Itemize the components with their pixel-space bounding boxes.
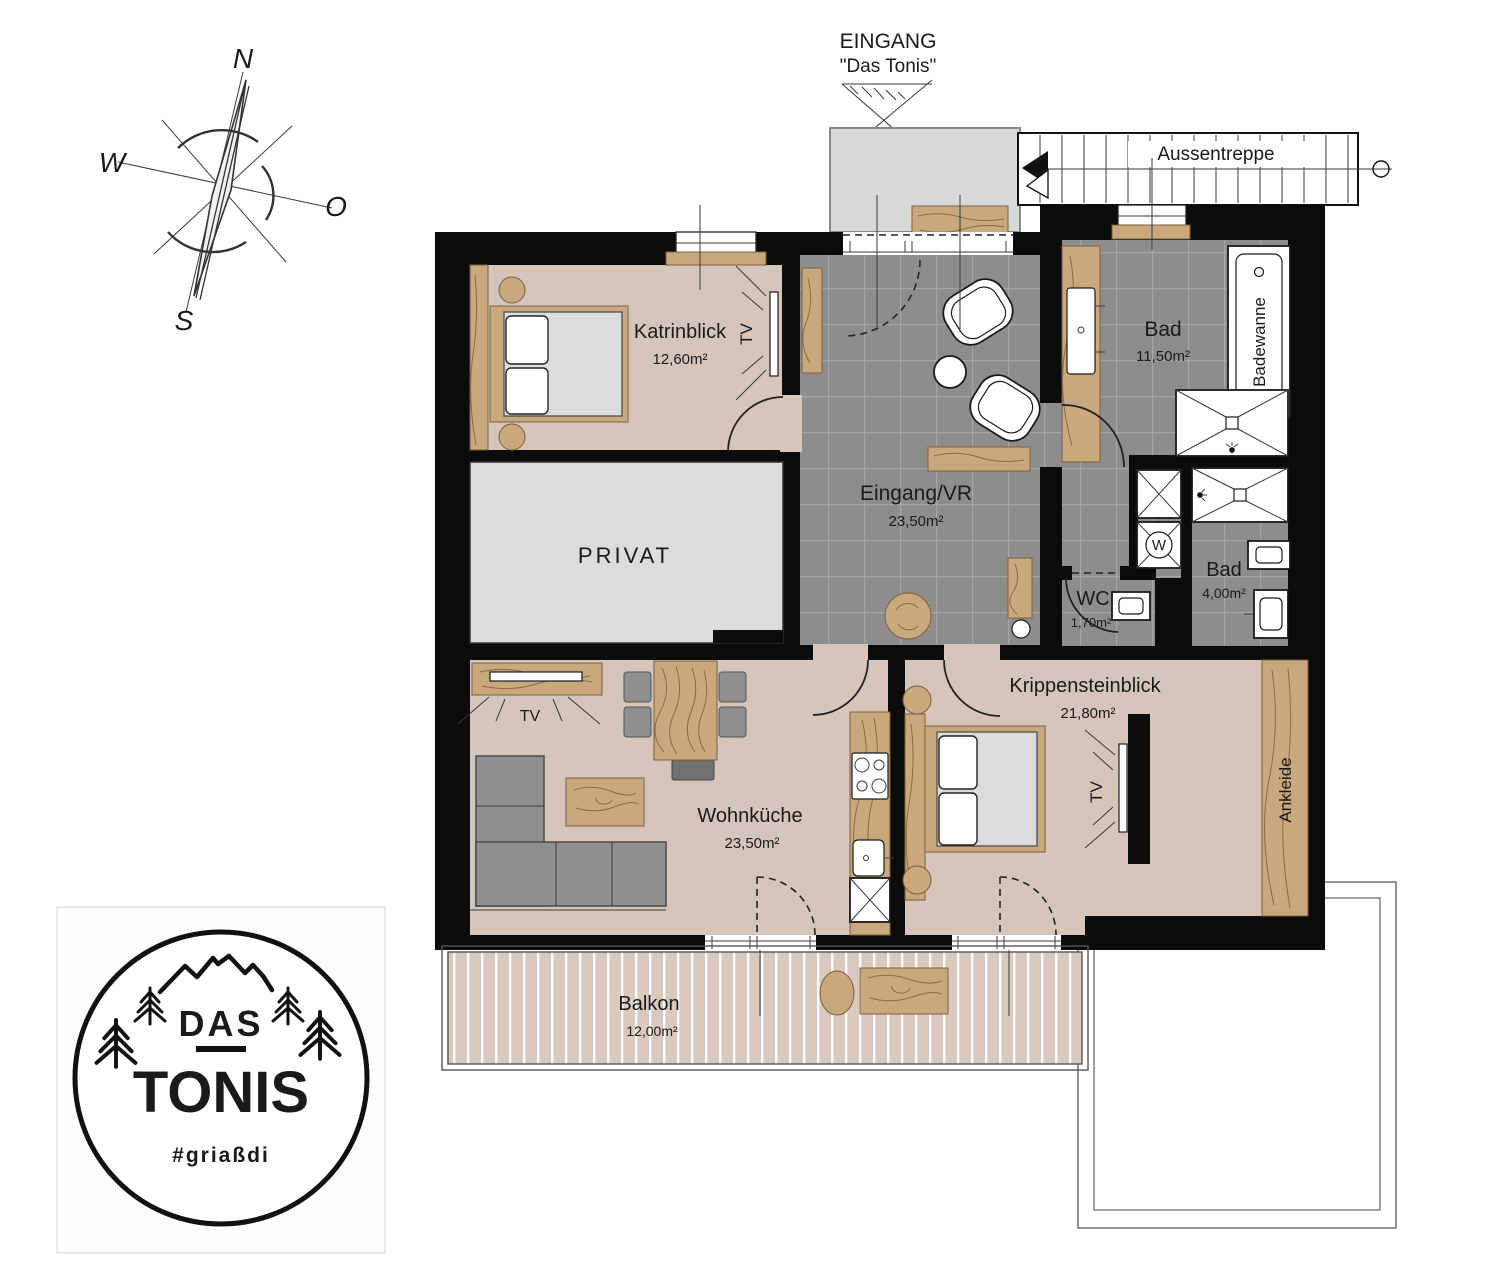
vanity bbox=[1062, 246, 1105, 462]
wc-area: 1,70m² bbox=[1071, 615, 1112, 630]
toilet-icon bbox=[1248, 541, 1290, 569]
entrance-subtitle: "Das Tonis" bbox=[840, 56, 937, 77]
bed bbox=[925, 726, 1045, 852]
katrinblick-area: 12,60m² bbox=[652, 351, 707, 368]
krippensteinblick-area: 21,80m² bbox=[1060, 705, 1115, 722]
tv-label: TV bbox=[737, 322, 756, 344]
kitchen-counter bbox=[850, 712, 894, 935]
wohnkueche-area: 23,50m² bbox=[724, 835, 779, 852]
logo-tagline: #griaßdi bbox=[172, 1144, 270, 1167]
tv-label: TV bbox=[520, 708, 541, 725]
coffee-table bbox=[566, 778, 644, 826]
balcony-door-opening-left bbox=[705, 935, 816, 950]
round-wood-table bbox=[885, 593, 931, 639]
balcony-door-opening-right bbox=[952, 935, 1061, 950]
nightstand bbox=[903, 686, 931, 714]
ankleide-name: Ankleide bbox=[1276, 757, 1295, 822]
balkon-area: 12,00m² bbox=[626, 1023, 678, 1039]
window-katrinblick bbox=[666, 232, 766, 265]
entrance-door-opening bbox=[843, 232, 1013, 255]
staircase-label: Aussentreppe bbox=[1157, 144, 1274, 165]
krippensteinblick-name: Krippensteinblick bbox=[1009, 675, 1161, 697]
bathtub-label: Badewanne bbox=[1250, 297, 1269, 387]
bad-gross-name: Bad bbox=[1144, 318, 1181, 341]
ankleide-strip: Ankleide bbox=[1262, 660, 1308, 916]
bed bbox=[490, 306, 628, 422]
logo: DAS TONIS #griaßdi bbox=[57, 907, 385, 1253]
eingang-area: 23,50m² bbox=[888, 513, 943, 530]
compass-n: N bbox=[233, 43, 254, 74]
compass-o: O bbox=[325, 191, 347, 222]
bad-gross-area: 11,50m² bbox=[1136, 348, 1190, 365]
toilet-icon bbox=[1112, 592, 1150, 620]
balcony-table bbox=[860, 968, 948, 1014]
compass: N W O S bbox=[99, 43, 347, 336]
outdoor-staircase: Aussentreppe bbox=[1018, 133, 1392, 205]
wood-bench-vertical bbox=[1008, 558, 1032, 618]
logo-das: DAS bbox=[178, 1003, 263, 1044]
wardrobe-bench bbox=[802, 268, 822, 373]
compass-s: S bbox=[175, 305, 194, 336]
nightstand bbox=[903, 866, 931, 894]
wood-wall-strip bbox=[470, 265, 488, 450]
eingang-name: Eingang/VR bbox=[860, 482, 972, 505]
entrance-title: EINGANG bbox=[840, 30, 937, 53]
balkon: Balkon 12,00m² bbox=[442, 946, 1088, 1070]
tv-board bbox=[472, 663, 602, 695]
bad-klein-area: 4,00m² bbox=[1202, 585, 1246, 601]
wc-name: WC bbox=[1076, 588, 1109, 610]
entrance-label: EINGANG "Das Tonis" bbox=[840, 30, 937, 142]
wood-bench bbox=[928, 447, 1030, 471]
nightstand bbox=[499, 424, 525, 450]
balcony-chair bbox=[820, 971, 854, 1015]
wohnkueche-name: Wohnküche bbox=[697, 805, 802, 827]
vase bbox=[1012, 620, 1030, 638]
balkon-name: Balkon bbox=[618, 993, 679, 1015]
landing bbox=[830, 128, 1020, 242]
bad-klein-name: Bad bbox=[1206, 559, 1242, 581]
katrinblick-name: Katrinblick bbox=[634, 321, 727, 343]
tv-label: TV bbox=[1087, 780, 1106, 802]
compass-w: W bbox=[99, 147, 128, 178]
window-bad bbox=[1112, 205, 1190, 239]
shelf-niche bbox=[1137, 470, 1181, 518]
washer-label: W bbox=[1152, 537, 1167, 554]
shower-icon bbox=[1192, 468, 1288, 522]
stove-icon bbox=[852, 753, 888, 799]
floor-plan: N W O S EINGANG "Das Tonis" bbox=[0, 0, 1500, 1284]
side-table bbox=[934, 356, 966, 388]
shower-icon bbox=[1176, 390, 1288, 456]
washing-machine-icon: W bbox=[1137, 522, 1181, 568]
privat-name: PRIVAT bbox=[578, 543, 672, 568]
nightstand bbox=[499, 277, 525, 303]
dishwasher-icon bbox=[850, 878, 890, 922]
logo-tonis: TONIS bbox=[133, 1060, 309, 1125]
